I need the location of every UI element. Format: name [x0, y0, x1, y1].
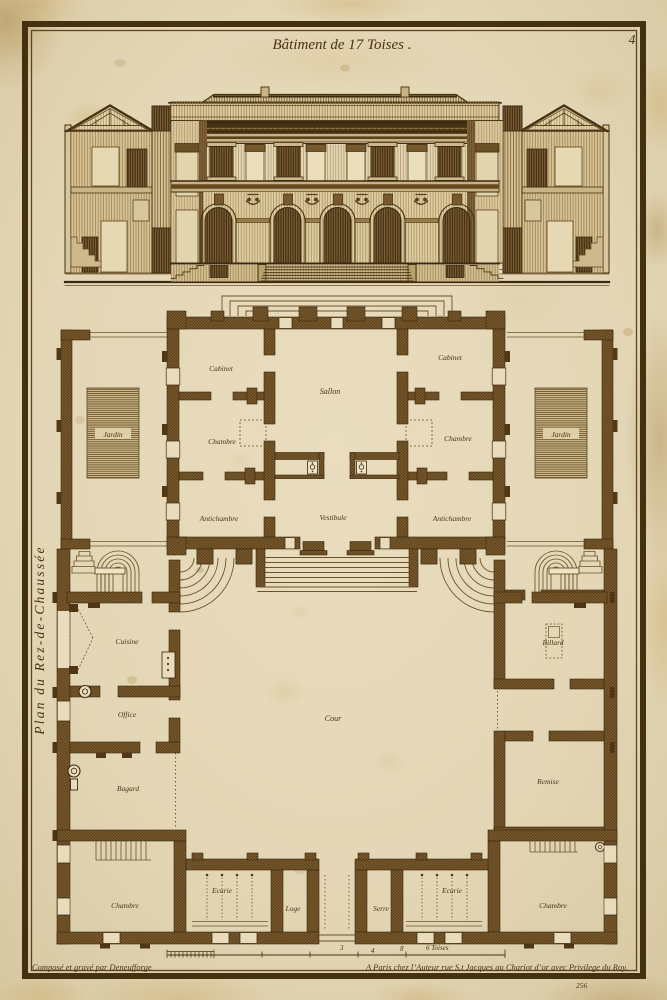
svg-text:Jardin: Jardin [103, 430, 123, 439]
svg-text:Cour: Cour [325, 714, 342, 723]
svg-text:Antichambre: Antichambre [432, 514, 472, 523]
svg-text:Ecurie: Ecurie [211, 886, 233, 895]
svg-text:Cabinet: Cabinet [438, 353, 463, 362]
svg-text:Loge: Loge [285, 904, 302, 913]
svg-text:Chambre: Chambre [111, 901, 139, 910]
svg-text:Office: Office [118, 710, 137, 719]
svg-text:Ecurie: Ecurie [441, 886, 463, 895]
svg-text:Composé et gravé par Deneuffor: Composé et gravé par Deneufforge [32, 962, 152, 972]
svg-text:3: 3 [339, 944, 344, 952]
svg-text:Vestibule: Vestibule [319, 513, 347, 522]
svg-text:Antichambre: Antichambre [199, 514, 239, 523]
svg-text:8: 8 [400, 945, 404, 953]
svg-text:Plan du Rez-de-Chaussée: Plan du Rez-de-Chaussée [32, 545, 47, 735]
svg-text:256: 256 [576, 981, 588, 990]
svg-text:Billard: Billard [543, 638, 564, 647]
svg-text:Serre: Serre [373, 904, 390, 913]
svg-text:Chambre: Chambre [444, 434, 472, 443]
svg-text:Chambre: Chambre [539, 901, 567, 910]
svg-text:Bagard: Bagard [117, 784, 139, 793]
svg-text:Remise: Remise [536, 777, 559, 786]
svg-text:Jardin: Jardin [551, 430, 571, 439]
svg-text:4: 4 [371, 947, 375, 955]
svg-text:Bâtiment de 17 Toises .: Bâtiment de 17 Toises . [272, 37, 411, 53]
svg-text:A Paris chez l’Auteur rue S.t: A Paris chez l’Auteur rue S.t Jacques au… [365, 962, 628, 972]
svg-text:Cuisine: Cuisine [116, 637, 140, 646]
svg-text:Cabinet: Cabinet [209, 364, 234, 373]
svg-text:6 Toises: 6 Toises [426, 944, 449, 952]
svg-text:4: 4 [629, 32, 636, 47]
svg-text:Chambre: Chambre [208, 437, 236, 446]
svg-text:Sallon: Sallon [320, 387, 340, 396]
